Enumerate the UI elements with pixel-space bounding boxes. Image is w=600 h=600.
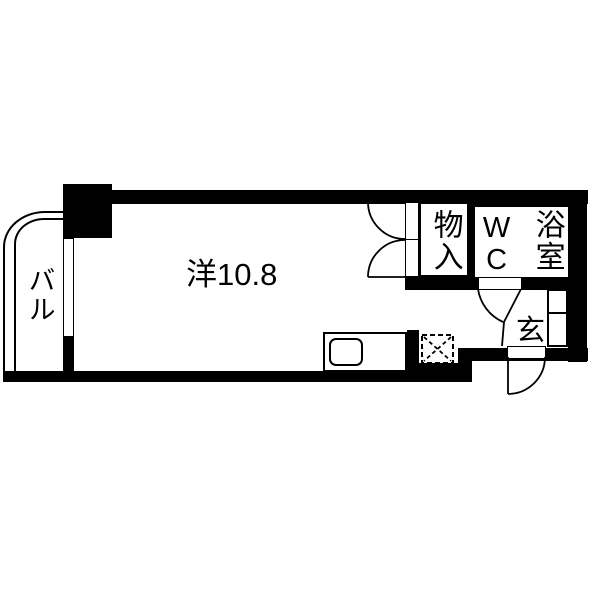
entry-door-arc <box>508 357 545 394</box>
wall-bottom-main <box>3 371 472 382</box>
closet-door-top-arc <box>368 202 405 239</box>
pillar-northwest <box>63 184 112 238</box>
main-room-label: 洋10.8 <box>186 259 277 291</box>
wall-left-lower <box>63 337 74 372</box>
wc-door-threshold <box>478 277 522 290</box>
shoe-cabinet-divider <box>547 312 568 314</box>
kitchen-sink <box>329 338 363 366</box>
closet-door-split-line <box>405 239 419 240</box>
floor-plan: 洋10.8 バル 物入 WC 浴室 玄 <box>0 0 600 600</box>
left-wall-window <box>63 238 74 337</box>
wall-washer-ledge <box>419 363 458 382</box>
toilet-label: WC <box>481 212 511 276</box>
pillar-kitchen <box>407 330 419 382</box>
door-swing-layer <box>0 0 600 600</box>
entry-door-threshold <box>507 346 546 359</box>
balcony-label: バル <box>25 266 53 324</box>
washer-space-x-icon <box>424 337 451 361</box>
bath-label: 浴室 <box>531 209 562 273</box>
washer-space-box <box>422 335 453 363</box>
closet-label: 物入 <box>429 209 460 273</box>
closet-door-bottom-arc <box>368 240 405 277</box>
entrance-label: 玄 <box>516 317 545 347</box>
wc-door-arc <box>478 289 503 322</box>
shoe-cabinet <box>547 289 568 347</box>
wall-right <box>568 190 587 362</box>
